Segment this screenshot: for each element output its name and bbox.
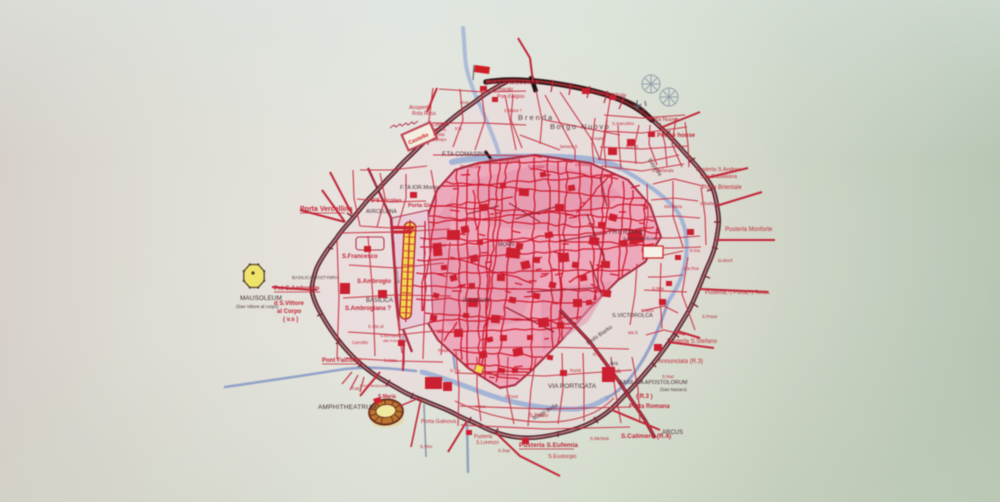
svg-text:tr.la: tr.la (455, 126, 462, 131)
svg-text:S.Ambrogio: S.Ambrogio (357, 279, 391, 285)
svg-text:AVRCELLINA: AVRCELLINA (366, 209, 397, 215)
svg-text:BASILICA NOSTYMRA: BASILICA NOSTYMRA (292, 275, 339, 280)
svg-text:S.Gio Concilione: S.Gio Concilione (623, 236, 657, 241)
svg-text:in.lna: in.lna (690, 248, 701, 253)
svg-text:Ara: Ara (610, 361, 618, 367)
svg-text:Pta Morisna: Pta Morisna (489, 158, 519, 164)
svg-text:S.Maria ?: S.Maria ? (504, 108, 523, 113)
svg-text:Porta Gio: Porta Gio (408, 203, 433, 209)
svg-text:Sta Maria: Sta Maria (664, 204, 683, 209)
svg-text:S.Sisto: S.Sisto (384, 358, 398, 363)
svg-text:Portae house: Portae house (657, 133, 696, 139)
svg-text:Bro olt: Bro olt (626, 144, 639, 149)
svg-text:S.Prass: S.Prass (702, 314, 718, 319)
svg-text:S.Geor: S.Geor (505, 394, 519, 399)
svg-text:S.Balla: S.Balla (700, 201, 714, 206)
svg-text:d S.Vittore: d S.Vittore (274, 301, 305, 307)
svg-text:R.ta: R.ta (593, 352, 601, 357)
svg-text:Pusterla S.Andrea: Pusterla S.Andrea (696, 167, 742, 173)
svg-text:Porta Nuova: Porta Nuova (648, 117, 680, 123)
svg-text:S.ta Babilaiana: S.ta Babilaiana (700, 174, 738, 180)
svg-text:S.Sty: S.Sty (450, 368, 461, 373)
svg-text:S.Sep: S.Sep (498, 448, 511, 453)
svg-text:S.Tomar: S.Tomar (575, 162, 591, 167)
svg-text:la.Monf: la.Monf (718, 258, 733, 263)
svg-text:PALATIUM: PALATIUM (463, 298, 490, 304)
svg-text:al Corpo: al Corpo (277, 309, 302, 315)
svg-text:lamactr.S: lamactr.S (560, 144, 578, 149)
svg-text:ARCUS: ARCUS (662, 430, 683, 436)
svg-text:Carroblo: Carroblo (352, 340, 369, 345)
svg-text:F.TA COMASINA: F.TA COMASINA (442, 152, 487, 158)
svg-text:B.ta S.RADEGUNDA: B.ta S.RADEGUNDA (486, 80, 539, 86)
svg-text:S.margkr: S.margkr (493, 87, 514, 93)
svg-text:S.Naz: S.Naz (662, 374, 674, 379)
svg-text:(San Nazaro): (San Nazaro) (660, 387, 687, 392)
svg-text:BASILICA: BASILICA (366, 298, 393, 304)
svg-text:Pnt S.Ambrogio: Pnt S.Ambrogio (274, 286, 320, 292)
svg-text:Annunciata (R.3): Annunciata (R.3) (658, 359, 703, 365)
svg-text:alle Formiche: alle Formiche (383, 338, 408, 343)
svg-text:Falc: Falc (352, 386, 361, 391)
svg-text:S.Paolo: S.Paolo (529, 413, 548, 419)
svg-text:( v.s ): ( v.s ) (283, 317, 298, 323)
svg-text:S.maria: S.maria (590, 136, 605, 141)
svg-text:Romalk: Romalk (604, 369, 621, 375)
svg-text:Romlt: Romlt (570, 368, 582, 373)
svg-text:S.Lorenzo: S.Lorenzo (476, 440, 499, 446)
svg-text:Pusterla S.Stefano: Pusterla S.Stefano (667, 339, 718, 345)
svg-text:S.Maria: S.Maria (378, 394, 396, 400)
svg-text:Borgo Nuovo: Borgo Nuovo (550, 122, 610, 131)
svg-text:Porta Romana: Porta Romana (629, 404, 670, 410)
svg-text:Pusterla(?) Porta(?) Tonsa: Pusterla(?) Porta(?) Tonsa (705, 290, 770, 296)
svg-text:S.Stefanala: S.Stefanala (652, 168, 674, 173)
svg-text:S.VICTOROLCA: S.VICTOROLCA (612, 313, 653, 319)
svg-text:ata.S: ata.S (628, 330, 638, 335)
svg-text:BASILICA APOSTOLORUM: BASILICA APOSTOLORUM (619, 380, 688, 386)
svg-text:S.Eustorgio: S.Eustorgio (548, 454, 576, 460)
svg-text:F.TA IOR.Morlse: F.TA IOR.Morlse (400, 185, 440, 191)
svg-text:VIA PORTICATA: VIA PORTICATA (548, 383, 597, 390)
svg-text:Pont Falconis: Pont Falconis (322, 358, 362, 364)
svg-text:MORS: MORS (498, 242, 515, 248)
svg-text:( R.3 ): ( R.3 ) (636, 394, 653, 400)
svg-text:S.Michele: S.Michele (590, 436, 610, 441)
svg-text:S.Vinc: S.Vinc (420, 444, 433, 449)
svg-text:Porta Amicorum: Porta Amicorum (360, 383, 389, 388)
svg-text:S.protasr: S.protasr (528, 164, 546, 169)
svg-text:D'S Nicolao: D'S Nicolao (371, 198, 402, 204)
svg-text:Rota Rosa: Rota Rosa (412, 111, 436, 117)
svg-text:Pusterla Monforte: Pusterla Monforte (725, 227, 773, 233)
svg-text:S.Francesco: S.Francesco (342, 254, 378, 260)
svg-text:S.Nrta: S.Nrta (652, 286, 665, 291)
svg-text:Porta Brientale: Porta Brientale (702, 185, 742, 191)
svg-text:(San Vittore al corpo): (San Vittore al corpo) (236, 304, 279, 309)
svg-text:Palatr: Palatr (438, 348, 450, 353)
svg-text:Pta Gicrdla: Pta Gicrdla (460, 164, 481, 169)
svg-text:S.Mich: S.Mich (641, 308, 654, 313)
svg-text:S.la Ros: S.la Ros (683, 266, 699, 271)
svg-text:Campo: Campo (432, 137, 447, 142)
svg-text:Porta Vercellina: Porta Vercellina (300, 206, 353, 213)
svg-text:Pusterla S.Eufemia: Pusterla S.Eufemia (519, 442, 578, 449)
svg-text:Brenda: Brenda (518, 113, 554, 122)
svg-text:Vetus: Vetus (475, 404, 485, 409)
svg-text:Porta Galnova: Porta Galnova (421, 419, 457, 425)
svg-text:S.Ambrogiana ?: S.Ambrogiana ? (345, 306, 391, 312)
svg-text:Pon d'Algiso: Pon d'Algiso (497, 94, 525, 100)
svg-text:nivsr: nivsr (460, 100, 469, 105)
svg-text:AMPHITHEATRUM: AMPHITHEATRUM (318, 404, 377, 411)
svg-text:S.Vito al: S.Vito al (368, 324, 384, 329)
svg-text:S.marcelino: S.marcelino (612, 121, 635, 126)
